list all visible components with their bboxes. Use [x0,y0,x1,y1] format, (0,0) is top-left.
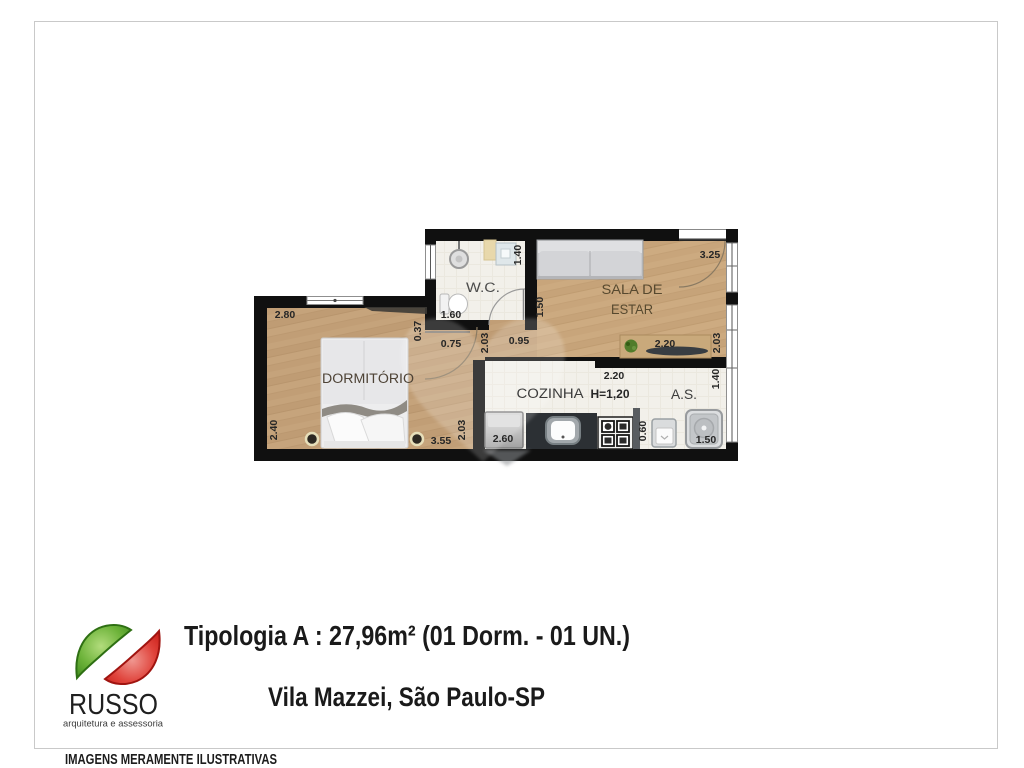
svg-text:SALA DE: SALA DE [602,282,663,297]
svg-text:W.C.: W.C. [466,280,500,295]
svg-text:0.95: 0.95 [509,335,530,347]
svg-text:2.03: 2.03 [479,333,491,354]
svg-text:3.25: 3.25 [700,249,721,261]
svg-text:RUSSO: RUSSO [69,689,158,721]
svg-text:1.60: 1.60 [441,309,462,321]
svg-text:Tipologia A : 27,96m² (01 Dorm: Tipologia A : 27,96m² (01 Dorm. - 01 UN.… [184,620,630,651]
svg-text:1.50: 1.50 [534,297,546,318]
svg-text:2.20: 2.20 [655,338,676,350]
svg-text:1.40: 1.40 [710,369,722,390]
svg-text:2.20: 2.20 [604,370,625,382]
svg-text:1.40: 1.40 [512,245,524,266]
svg-text:2.40: 2.40 [268,420,280,441]
svg-text:2.03: 2.03 [711,333,723,354]
svg-text:H=1,20: H=1,20 [590,387,629,401]
svg-text:2.80: 2.80 [275,309,296,321]
svg-text:1.50: 1.50 [696,434,717,446]
svg-text:DORMITÓRIO: DORMITÓRIO [322,371,414,386]
svg-text:3.55: 3.55 [431,435,452,447]
svg-text:ESTAR: ESTAR [611,302,653,317]
svg-text:IMAGENS MERAMENTE ILUSTRATIVAS: IMAGENS MERAMENTE ILUSTRATIVAS [65,752,277,768]
svg-text:2.60: 2.60 [493,433,514,445]
svg-text:A.S.: A.S. [671,387,697,402]
svg-text:arquitetura e assessoria: arquitetura e assessoria [63,719,164,730]
svg-text:Vila Mazzei, São Paulo-SP: Vila Mazzei, São Paulo-SP [268,682,545,712]
svg-text:0.37: 0.37 [412,321,424,342]
svg-text:0.75: 0.75 [441,338,462,350]
svg-text:2.03: 2.03 [456,420,468,441]
svg-text:COZINHA: COZINHA [517,386,584,401]
svg-text:0.60: 0.60 [637,421,649,442]
